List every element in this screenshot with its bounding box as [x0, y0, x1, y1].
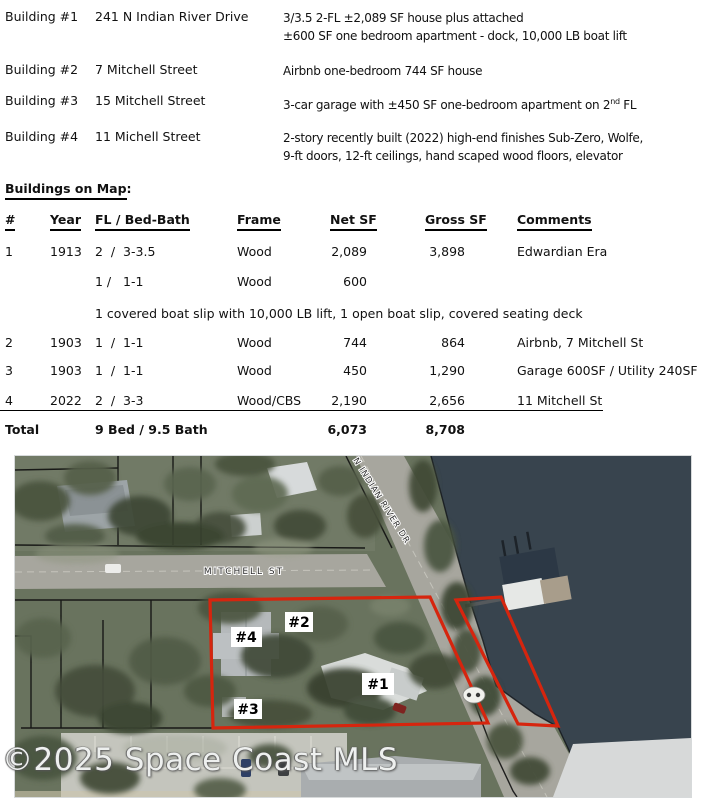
- cell-frame: Wood/CBS: [237, 393, 301, 409]
- mitchell-street-label: MITCHELL ST: [204, 567, 284, 577]
- building-desc-line: Airbnb one-bedroom 744 SF house: [283, 62, 482, 80]
- building-desc-line: 3/3.5 2-FL ±2,089 SF house plus attached: [283, 9, 523, 27]
- col-header-frame: Frame: [237, 212, 281, 231]
- cell-frame: Wood: [237, 244, 272, 260]
- cell-comments: 11 Mitchell St: [517, 393, 602, 409]
- building-row-4: Building #4 11 Michell Street 2-story re…: [0, 129, 701, 147]
- building-label: Building #1: [5, 9, 78, 25]
- cell-num: 1: [5, 244, 13, 260]
- cell-flbedbath: 1 / 1-1: [95, 335, 143, 351]
- building-marker-2: #2: [285, 612, 313, 632]
- cell-flbedbath: 2 / 3-3: [95, 393, 143, 409]
- building-desc-line: 3-car garage with ±450 SF one-bedroom ap…: [283, 93, 636, 114]
- building-address: 15 Mitchell Street: [95, 93, 205, 109]
- col-header-year: Year: [50, 212, 81, 231]
- cell-year: 1903: [50, 363, 82, 379]
- desc-text: FL: [620, 98, 637, 112]
- building-address: 241 N Indian River Drive: [95, 9, 248, 25]
- cell-grosssf: 2,656: [398, 393, 465, 409]
- boat-slip-note: 1 covered boat slip with 10,000 LB lift,…: [95, 306, 583, 322]
- building-desc-line: ±600 SF one bedroom apartment - dock, 10…: [283, 27, 627, 45]
- cell-comments: Airbnb, 7 Mitchell St: [517, 335, 643, 351]
- map-bottom-strip: [15, 791, 345, 797]
- cell-netsf: 450: [300, 363, 367, 379]
- cell-comments: Edwardian Era: [517, 244, 607, 260]
- section-title-colon: :: [127, 181, 132, 196]
- cell-netsf: 600: [300, 274, 367, 290]
- table-row: 4 2022 2 / 3-3 Wood/CBS 2,190 2,656 11 M…: [0, 393, 701, 411]
- table-total-row: Total 9 Bed / 9.5 Bath 6,073 8,708: [0, 422, 701, 440]
- building-label: Building #3: [5, 93, 78, 109]
- marker-label: #2: [288, 615, 309, 631]
- building-row-1: Building #1 241 N Indian River Drive 3/3…: [0, 9, 701, 27]
- total-label: Total: [5, 422, 39, 438]
- building-marker-4: #4: [231, 627, 262, 647]
- cell-year: 1903: [50, 335, 82, 351]
- total-grosssf: 8,708: [398, 422, 465, 438]
- col-header-netsf: Net SF: [330, 212, 377, 231]
- ordinal-superscript: nd: [610, 97, 620, 106]
- cell-grosssf: 864: [398, 335, 465, 351]
- cell-num: 2: [5, 335, 13, 351]
- section-title-row: Buildings on Map:: [0, 181, 701, 199]
- table-subrow: 1 / 1-1 Wood 600: [0, 274, 701, 292]
- total-bedbath: 9 Bed / 9.5 Bath: [95, 422, 208, 438]
- property-flyer-page: { "buildings": { "rows": [ {"label":"Bui…: [0, 0, 701, 800]
- table-row: 1 1913 2 / 3-3.5 Wood 2,089 3,898 Edward…: [0, 244, 701, 262]
- southeast-building-roof: [553, 738, 691, 797]
- cell-num: 3: [5, 363, 13, 379]
- cell-netsf: 2,089: [300, 244, 367, 260]
- total-netsf: 6,073: [300, 422, 367, 438]
- cell-netsf: 2,190: [300, 393, 367, 409]
- col-header-flbedbath: FL / Bed-Bath: [95, 212, 190, 231]
- road-marker-oval: [463, 687, 485, 703]
- building-label: Building #2: [5, 62, 78, 78]
- boathouse-tan-section: [540, 575, 572, 603]
- cell-netsf: 744: [300, 335, 367, 351]
- col-header-grosssf: Gross SF: [425, 212, 487, 231]
- cell-flbedbath: 1 / 1-1: [95, 274, 143, 290]
- cell-frame: Wood: [237, 363, 272, 379]
- cell-grosssf: 3,898: [398, 244, 465, 260]
- building-row-2: Building #2 7 Mitchell Street Airbnb one…: [0, 62, 701, 80]
- cell-frame: Wood: [237, 335, 272, 351]
- cell-year: 2022: [50, 393, 82, 409]
- section-title-text: Buildings on Map: [5, 181, 127, 200]
- desc-text: 3-car garage with ±450 SF one-bedroom ap…: [283, 98, 610, 112]
- table-header-row: # Year FL / Bed-Bath Frame Net SF Gross …: [0, 212, 701, 230]
- building-marker-1: #1: [362, 673, 394, 695]
- building-desc-line: 9-ft doors, 12-ft ceilings, hand scaped …: [283, 147, 623, 165]
- section-title: Buildings on Map:: [5, 181, 132, 200]
- cell-grosssf: 1,290: [398, 363, 465, 379]
- cell-num: 4: [5, 393, 13, 409]
- cell-comments: Garage 600SF / Utility 240SF: [517, 363, 698, 379]
- cell-flbedbath: 1 / 1-1: [95, 363, 143, 379]
- table-row: 2 1903 1 / 1-1 Wood 744 864 Airbnb, 7 Mi…: [0, 335, 701, 353]
- cell-frame: Wood: [237, 274, 272, 290]
- building-address: 7 Mitchell Street: [95, 62, 197, 78]
- building-row-3: Building #3 15 Mitchell Street 3-car gar…: [0, 93, 701, 111]
- col-header-num: #: [5, 212, 15, 231]
- table-bottom-rule: [0, 410, 603, 411]
- building-address: 11 Michell Street: [95, 129, 201, 145]
- white-car: [105, 564, 121, 573]
- building-marker-3: #3: [234, 699, 262, 719]
- marker-label: #3: [237, 702, 258, 718]
- marker-label: #4: [235, 630, 257, 646]
- col-header-comments: Comments: [517, 212, 592, 231]
- mls-watermark: ©2025 Space Coast MLS: [2, 742, 398, 778]
- marker-label: #1: [367, 677, 388, 693]
- table-note-row: 1 covered boat slip with 10,000 LB lift,…: [0, 306, 701, 324]
- cell-year: 1913: [50, 244, 82, 260]
- building-label: Building #4: [5, 129, 78, 145]
- cell-flbedbath: 2 / 3-3.5: [95, 244, 155, 260]
- table-row: 3 1903 1 / 1-1 Wood 450 1,290 Garage 600…: [0, 363, 701, 381]
- building-desc-line: 2-story recently built (2022) high-end f…: [283, 129, 643, 147]
